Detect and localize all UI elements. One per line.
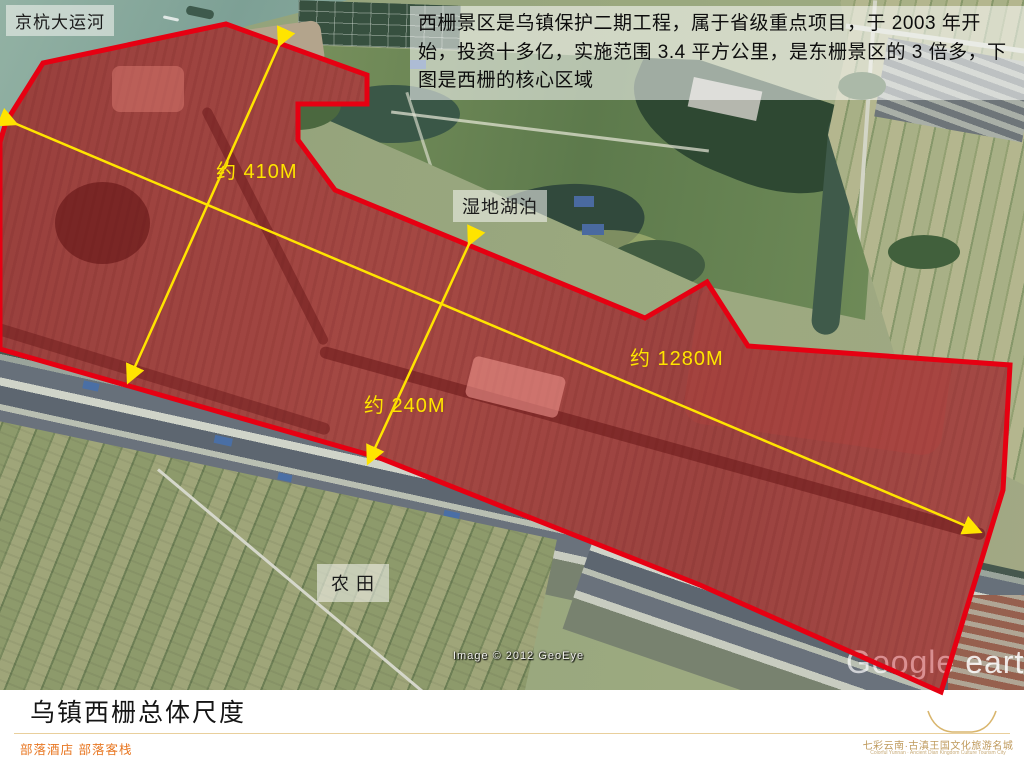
ingot-logo-icon xyxy=(922,709,1002,735)
map-town-lake xyxy=(55,182,150,264)
description-text: 西栅景区是乌镇保护二期工程，属于省级重点项目，于 2003 年开始，投资十多亿，… xyxy=(410,6,1024,100)
map-blue-roof xyxy=(214,435,233,447)
measure-label-410: 约 410M xyxy=(216,155,298,184)
imagery-copyright: Image © 2012 GeoEye xyxy=(453,650,584,662)
map-town-clearing xyxy=(112,66,184,112)
satellite-map[interactable]: Googleearth Image © 2012 GeoEye xyxy=(0,0,1024,690)
earth-logo-text: earth xyxy=(965,644,1024,680)
google-logo-text: Google xyxy=(846,644,955,680)
label-wetland: 湿地湖泊 xyxy=(453,190,547,222)
label-farmland: 农 田 xyxy=(317,564,389,602)
measure-label-1280: 约 1280M xyxy=(630,342,724,371)
map-boat xyxy=(185,5,214,20)
footer-divider xyxy=(14,733,1010,734)
label-grand-canal: 京杭大运河 xyxy=(6,5,114,36)
footer-brand-right-en: Colorful Yunnan · Ancient Dian Kingdom C… xyxy=(855,750,1021,756)
slide: Googleearth Image © 2012 GeoEye 乌镇西栅总体尺度… xyxy=(0,0,1024,768)
map-blue-roof xyxy=(574,196,594,207)
map-tree-cluster xyxy=(888,235,960,269)
map-boat-wake xyxy=(163,15,179,21)
footer-brand-left: 部落酒店 部落客栈 xyxy=(20,739,132,758)
measure-label-240: 约 240M xyxy=(364,389,446,418)
page-title: 乌镇西栅总体尺度 xyxy=(30,693,246,729)
map-blue-roof xyxy=(82,380,99,391)
google-earth-watermark: Googleearth xyxy=(846,644,1024,681)
map-blue-roof xyxy=(582,224,604,235)
